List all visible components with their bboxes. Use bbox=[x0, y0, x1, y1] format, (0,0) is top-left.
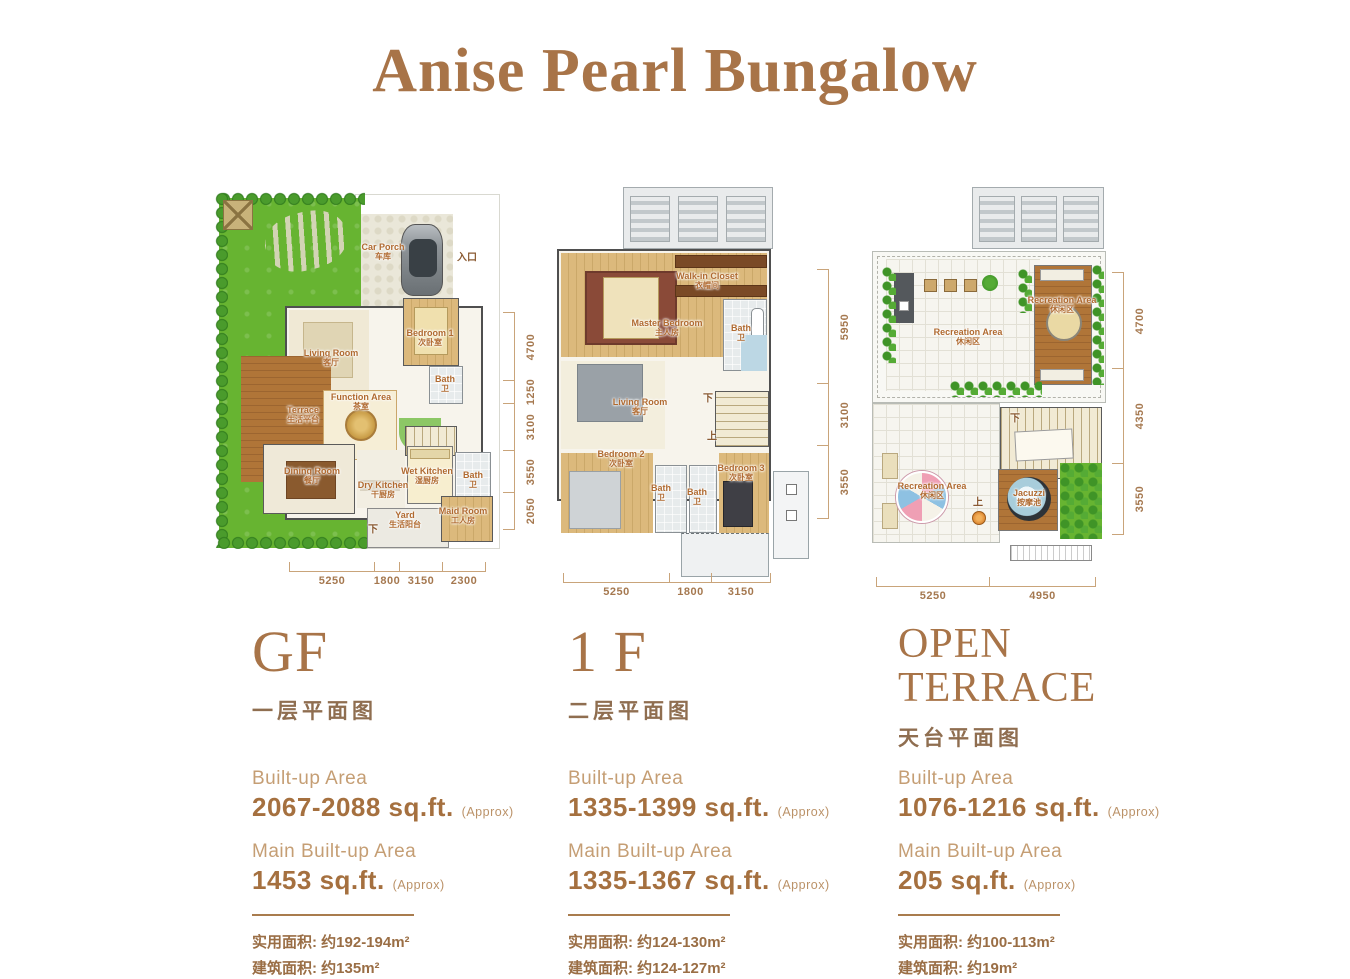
area-value-text: 1335-1399 sq.ft. bbox=[568, 792, 770, 822]
room-label-cn: 生活平台 bbox=[287, 416, 319, 425]
ac-unit bbox=[786, 510, 797, 521]
room-label-cn: 主人房 bbox=[631, 329, 702, 338]
floor-name-cn: 天台平面图 bbox=[898, 722, 1178, 752]
room-label-en: Walk-in Closet bbox=[676, 271, 738, 281]
room-label-cn: 客厅 bbox=[613, 408, 668, 417]
outdoor-sofa bbox=[1040, 369, 1084, 381]
room-label-master-bedroom: Master Bedroom 主人房 bbox=[631, 318, 702, 338]
stairs-up-mark: 上 bbox=[973, 494, 983, 509]
terrace-steps bbox=[1010, 545, 1092, 561]
dimension-segment: 3150 bbox=[399, 562, 442, 572]
dimension-label: 5950 bbox=[839, 313, 851, 339]
outdoor-chair bbox=[944, 279, 957, 292]
stair-landing bbox=[1014, 429, 1073, 462]
dimension-segment: 2050 bbox=[503, 492, 515, 530]
dimension-label: 1250 bbox=[525, 379, 537, 405]
room-label-bath: Bath 卫 bbox=[463, 470, 483, 490]
room-label-en: Car Porch bbox=[361, 242, 404, 252]
dimension-label: 3550 bbox=[525, 458, 537, 484]
roof-louver bbox=[726, 196, 766, 242]
dimension-label: 1800 bbox=[677, 586, 703, 598]
room-label-cn: 茶室 bbox=[331, 403, 391, 412]
right-dimension-ruler: 4700 1250 3100 3550 2050 bbox=[503, 312, 515, 530]
area-info: Built-up Area 2067-2088 sq.ft.(Approx) M… bbox=[252, 768, 542, 979]
stairs-down-mark: 下 bbox=[368, 521, 378, 536]
main-built-up-area-label: Main Built-up Area bbox=[898, 841, 1188, 863]
built-up-area-label: Built-up Area bbox=[252, 768, 542, 790]
floor-name: GF bbox=[252, 622, 532, 683]
open-terrace-info-column: OPEN TERRACE 天台平面图 Built-up Area 1076-12… bbox=[898, 622, 1178, 752]
room-label-bath: Bath 卫 bbox=[651, 483, 671, 503]
room-label-en: Jacuzzi bbox=[1013, 488, 1045, 498]
dimension-label: 5250 bbox=[920, 590, 946, 602]
fire-pit bbox=[972, 511, 986, 525]
dimension-segment: 4350 bbox=[1112, 368, 1124, 463]
floor-name: OPEN TERRACE bbox=[898, 622, 1128, 710]
round-table bbox=[345, 409, 377, 441]
room-label-cn: 干厨房 bbox=[358, 491, 409, 500]
room-label-cn: 卫 bbox=[651, 494, 671, 503]
dimension-segment: 3150 bbox=[711, 573, 771, 583]
built-area-cn: 建筑面积: 约19m² bbox=[898, 956, 1188, 979]
dimension-segment: 3100 bbox=[503, 403, 515, 450]
usable-area-cn: 实用面积: 约192-194m² bbox=[252, 930, 542, 956]
floor-name-cn: 二层平面图 bbox=[568, 695, 848, 725]
approx-note: (Approx) bbox=[462, 805, 514, 819]
entrance-mark: 入口 bbox=[457, 249, 477, 264]
divider-line bbox=[898, 914, 1060, 916]
room-label-en: Bath bbox=[463, 470, 483, 480]
room-label-bath: Bath 卫 bbox=[687, 487, 707, 507]
built-area-cn: 建筑面积: 约135m² bbox=[252, 956, 542, 979]
bed bbox=[569, 471, 621, 529]
lounge-chair bbox=[882, 453, 898, 479]
kitchen-counter bbox=[410, 449, 450, 459]
room-label-walk-in-closet: Walk-in Closet 衣帽间 bbox=[676, 271, 738, 291]
room-label-en: Wet Kitchen bbox=[401, 466, 453, 476]
1f-info-column: 1 F 二层平面图 Built-up Area 1335-1399 sq.ft.… bbox=[568, 622, 848, 725]
built-area-cn: 建筑面积: 约124-127m² bbox=[568, 956, 858, 979]
room-label-cn: 衣帽间 bbox=[676, 282, 738, 291]
approx-note: (Approx) bbox=[778, 878, 830, 892]
potted-plant bbox=[982, 275, 998, 291]
room-label-yard: Yard 生活阳台 bbox=[389, 510, 421, 530]
room-label-bath: Bath 卫 bbox=[731, 323, 751, 343]
gf-floor-plan: Car Porch 车库 入口 Living Room 客厅 Bedroom 1… bbox=[215, 188, 525, 598]
stairs-up-mark: 上 bbox=[707, 428, 717, 443]
room-label-en: Bedroom 1 bbox=[406, 328, 453, 338]
room-label-cn: 休闲区 bbox=[934, 338, 1003, 347]
dimension-label: 4700 bbox=[525, 333, 537, 359]
built-up-area-label: Built-up Area bbox=[568, 768, 858, 790]
usable-area-cn: 实用面积: 约100-113m² bbox=[898, 930, 1188, 956]
stairs-down-mark: 下 bbox=[703, 390, 713, 405]
dimension-label: 5250 bbox=[319, 575, 345, 587]
bottom-dimension-ruler: 5250 4950 bbox=[876, 577, 1096, 587]
main-built-up-area-value: 1335-1367 sq.ft.(Approx) bbox=[568, 865, 858, 896]
room-label-en: Bath bbox=[687, 487, 707, 497]
room-label-car-porch: Car Porch 车库 bbox=[361, 242, 404, 262]
room-label-en: Terrace bbox=[287, 405, 319, 415]
bottom-dimension-ruler: 5250 1800 3150 2300 bbox=[289, 562, 486, 572]
room-label-cn: 生活阳台 bbox=[389, 521, 421, 530]
room-label-dining-room: Dining Room 餐厅 bbox=[284, 466, 340, 486]
room-label-cn: 按摩池 bbox=[1013, 499, 1045, 508]
room-label-en: Dining Room bbox=[284, 466, 340, 476]
dimension-label: 3100 bbox=[839, 401, 851, 427]
room-label-en: Bedroom 3 bbox=[717, 463, 764, 473]
dimension-label: 2300 bbox=[451, 575, 477, 587]
room-label-recreation-area: Recreation Area 休闲区 bbox=[898, 481, 967, 501]
room-label-bedroom-3: Bedroom 3 次卧室 bbox=[717, 463, 764, 483]
dimension-label: 4350 bbox=[1134, 403, 1146, 429]
dimension-segment: 5250 bbox=[876, 577, 989, 587]
outdoor-sofa bbox=[1040, 269, 1084, 281]
room-label-en: Bedroom 2 bbox=[597, 449, 644, 459]
right-dimension-ruler: 4700 4350 3550 bbox=[1112, 272, 1124, 535]
room-label-en: Recreation Area bbox=[1028, 295, 1097, 305]
balcony bbox=[681, 533, 769, 577]
room-label-bath: Bath 卫 bbox=[435, 374, 455, 394]
dimension-segment: 1250 bbox=[503, 380, 515, 403]
outdoor-chair bbox=[924, 279, 937, 292]
stairs-down-mark: 下 bbox=[1010, 410, 1020, 425]
usable-area-cn: 实用面积: 约124-130m² bbox=[568, 930, 858, 956]
main-built-up-area-value: 205 sq.ft.(Approx) bbox=[898, 865, 1188, 896]
room-label-bedroom-2: Bedroom 2 次卧室 bbox=[597, 449, 644, 469]
built-up-area-label: Built-up Area bbox=[898, 768, 1188, 790]
planter-strip bbox=[1092, 265, 1104, 385]
hedge-row bbox=[215, 192, 228, 548]
room-label-cn: 次卧室 bbox=[597, 460, 644, 469]
right-dimension-ruler: 5950 3100 3550 bbox=[817, 269, 829, 519]
room-label-en: Maid Room bbox=[439, 506, 488, 516]
divider-line bbox=[568, 914, 730, 916]
room-label-cn: 休闲区 bbox=[898, 492, 967, 501]
outdoor-kitchen-counter bbox=[894, 273, 914, 323]
dimension-label: 3150 bbox=[408, 575, 434, 587]
main-built-up-area-value: 1453 sq.ft.(Approx) bbox=[252, 865, 542, 896]
dimension-segment: 2300 bbox=[442, 562, 486, 572]
room-label-en: Recreation Area bbox=[898, 481, 967, 491]
room-label-cn: 卫 bbox=[435, 385, 455, 394]
ac-ledge bbox=[773, 471, 809, 559]
1f-floor-plan: Walk-in Closet 衣帽间 Master Bedroom 主人房 Ba… bbox=[545, 185, 855, 605]
room-label-recreation-area: Recreation Area 休闲区 bbox=[934, 327, 1003, 347]
dimension-label: 3550 bbox=[1134, 486, 1146, 512]
room-label-bedroom-1: Bedroom 1 次卧室 bbox=[406, 328, 453, 348]
wardrobe-row bbox=[675, 255, 767, 268]
dimension-label: 3150 bbox=[728, 586, 754, 598]
built-up-area-value: 1076-1216 sq.ft.(Approx) bbox=[898, 792, 1188, 823]
planter-strip bbox=[882, 267, 896, 363]
page-title: Anise Pearl Bungalow bbox=[0, 36, 1350, 107]
lounge-chair bbox=[882, 503, 898, 529]
main-built-up-area-label: Main Built-up Area bbox=[252, 841, 542, 863]
planter-strip bbox=[950, 381, 1042, 397]
room-label-cn: 卫 bbox=[731, 334, 751, 343]
room-label-en: Living Room bbox=[613, 397, 668, 407]
approx-note: (Approx) bbox=[778, 805, 830, 819]
area-value-text: 1335-1367 sq.ft. bbox=[568, 865, 770, 895]
roof-louver bbox=[1021, 196, 1057, 242]
bottom-dimension-ruler: 5250 1800 3150 bbox=[563, 573, 771, 583]
staircase bbox=[715, 391, 769, 447]
divider-line bbox=[252, 914, 414, 916]
area-info: Built-up Area 1335-1399 sq.ft.(Approx) M… bbox=[568, 768, 858, 979]
dimension-segment: 1800 bbox=[374, 562, 399, 572]
area-value-text: 1076-1216 sq.ft. bbox=[898, 792, 1100, 822]
room-label-living-room: Living Room 客厅 bbox=[304, 348, 359, 368]
approx-note: (Approx) bbox=[1024, 878, 1076, 892]
dimension-segment: 1800 bbox=[669, 573, 711, 583]
room-label-cn: 工人房 bbox=[439, 517, 488, 526]
room-label-cn: 休闲区 bbox=[1028, 306, 1097, 315]
room-label-cn: 湿厨房 bbox=[401, 477, 453, 486]
room-label-maid-room: Maid Room 工人房 bbox=[439, 506, 488, 526]
dimension-segment: 4700 bbox=[503, 312, 515, 380]
dimension-segment: 3550 bbox=[1112, 463, 1124, 535]
area-info: Built-up Area 1076-1216 sq.ft.(Approx) M… bbox=[898, 768, 1188, 979]
dimension-segment: 5950 bbox=[817, 269, 829, 383]
room-label-cn: 车库 bbox=[361, 253, 404, 262]
dimension-label: 3550 bbox=[839, 469, 851, 495]
room-label-cn: 客厅 bbox=[304, 359, 359, 368]
room-label-en: Bath bbox=[731, 323, 751, 333]
area-value-text: 2067-2088 sq.ft. bbox=[252, 792, 454, 822]
sink bbox=[899, 301, 909, 311]
open-terrace-floor-plan: Recreation Area 休闲区 Recreation Area 休闲区 … bbox=[860, 185, 1150, 610]
dimension-segment: 3550 bbox=[817, 445, 829, 519]
brochure-page: Anise Pearl Bungalow bbox=[0, 0, 1350, 979]
room-label-en: Master Bedroom bbox=[631, 318, 702, 328]
garden-pavilion bbox=[223, 200, 253, 230]
area-value-text: 1453 sq.ft. bbox=[252, 865, 385, 895]
room-label-terrace: Terrace 生活平台 bbox=[287, 405, 319, 425]
bed bbox=[723, 481, 753, 527]
room-label-en: Recreation Area bbox=[934, 327, 1003, 337]
dimension-label: 2050 bbox=[525, 498, 537, 524]
roof-louver bbox=[630, 196, 670, 242]
room-label-wet-kitchen: Wet Kitchen 湿厨房 bbox=[401, 466, 453, 486]
room-label-recreation-area: Recreation Area 休闲区 bbox=[1028, 295, 1097, 315]
room-label-cn: 卫 bbox=[687, 498, 707, 507]
room-label-cn: 餐厅 bbox=[284, 477, 340, 486]
approx-note: (Approx) bbox=[393, 878, 445, 892]
room-label-living-room: Living Room 客厅 bbox=[613, 397, 668, 417]
built-up-area-value: 1335-1399 sq.ft.(Approx) bbox=[568, 792, 858, 823]
roof-panel bbox=[623, 187, 773, 249]
roof-louver bbox=[1063, 196, 1099, 242]
room-label-en: Living Room bbox=[304, 348, 359, 358]
area-value-text: 205 sq.ft. bbox=[898, 865, 1016, 895]
floor-name-cn: 一层平面图 bbox=[252, 695, 532, 725]
built-up-area-value: 2067-2088 sq.ft.(Approx) bbox=[252, 792, 542, 823]
roof-louver bbox=[678, 196, 718, 242]
hedge-row bbox=[217, 536, 369, 549]
dimension-label: 1800 bbox=[374, 575, 400, 587]
dimension-segment: 5250 bbox=[289, 562, 374, 572]
car bbox=[401, 224, 443, 296]
dimension-segment: 3100 bbox=[817, 383, 829, 445]
dimension-label: 3100 bbox=[525, 414, 537, 440]
main-built-up-area-label: Main Built-up Area bbox=[568, 841, 858, 863]
dimension-segment: 5250 bbox=[563, 573, 669, 583]
room-label-en: Function Area bbox=[331, 392, 391, 402]
car-windshield bbox=[409, 239, 437, 277]
dimension-label: 4950 bbox=[1029, 590, 1055, 602]
garden-patch bbox=[1060, 463, 1102, 539]
room-label-function-area: Function Area 茶室 bbox=[331, 392, 391, 412]
room-label-en: Bath bbox=[435, 374, 455, 384]
roof-panel bbox=[972, 187, 1104, 249]
room-label-cn: 卫 bbox=[463, 481, 483, 490]
dimension-label: 4700 bbox=[1134, 307, 1146, 333]
dimension-segment: 4950 bbox=[989, 577, 1096, 587]
room-label-cn: 次卧室 bbox=[717, 474, 764, 483]
room-label-en: Yard bbox=[389, 510, 421, 520]
room-label-jacuzzi: Jacuzzi 按摩池 bbox=[1013, 488, 1045, 508]
dimension-segment: 3550 bbox=[503, 450, 515, 492]
outdoor-chair bbox=[964, 279, 977, 292]
gf-info-column: GF 一层平面图 Built-up Area 2067-2088 sq.ft.(… bbox=[252, 622, 532, 725]
floor-name: 1 F bbox=[568, 622, 848, 683]
room-label-cn: 次卧室 bbox=[406, 339, 453, 348]
ac-unit bbox=[786, 484, 797, 495]
room-label-en: Bath bbox=[651, 483, 671, 493]
roof-louver bbox=[979, 196, 1015, 242]
approx-note: (Approx) bbox=[1108, 805, 1160, 819]
dimension-label: 5250 bbox=[603, 586, 629, 598]
dimension-segment: 4700 bbox=[1112, 272, 1124, 368]
